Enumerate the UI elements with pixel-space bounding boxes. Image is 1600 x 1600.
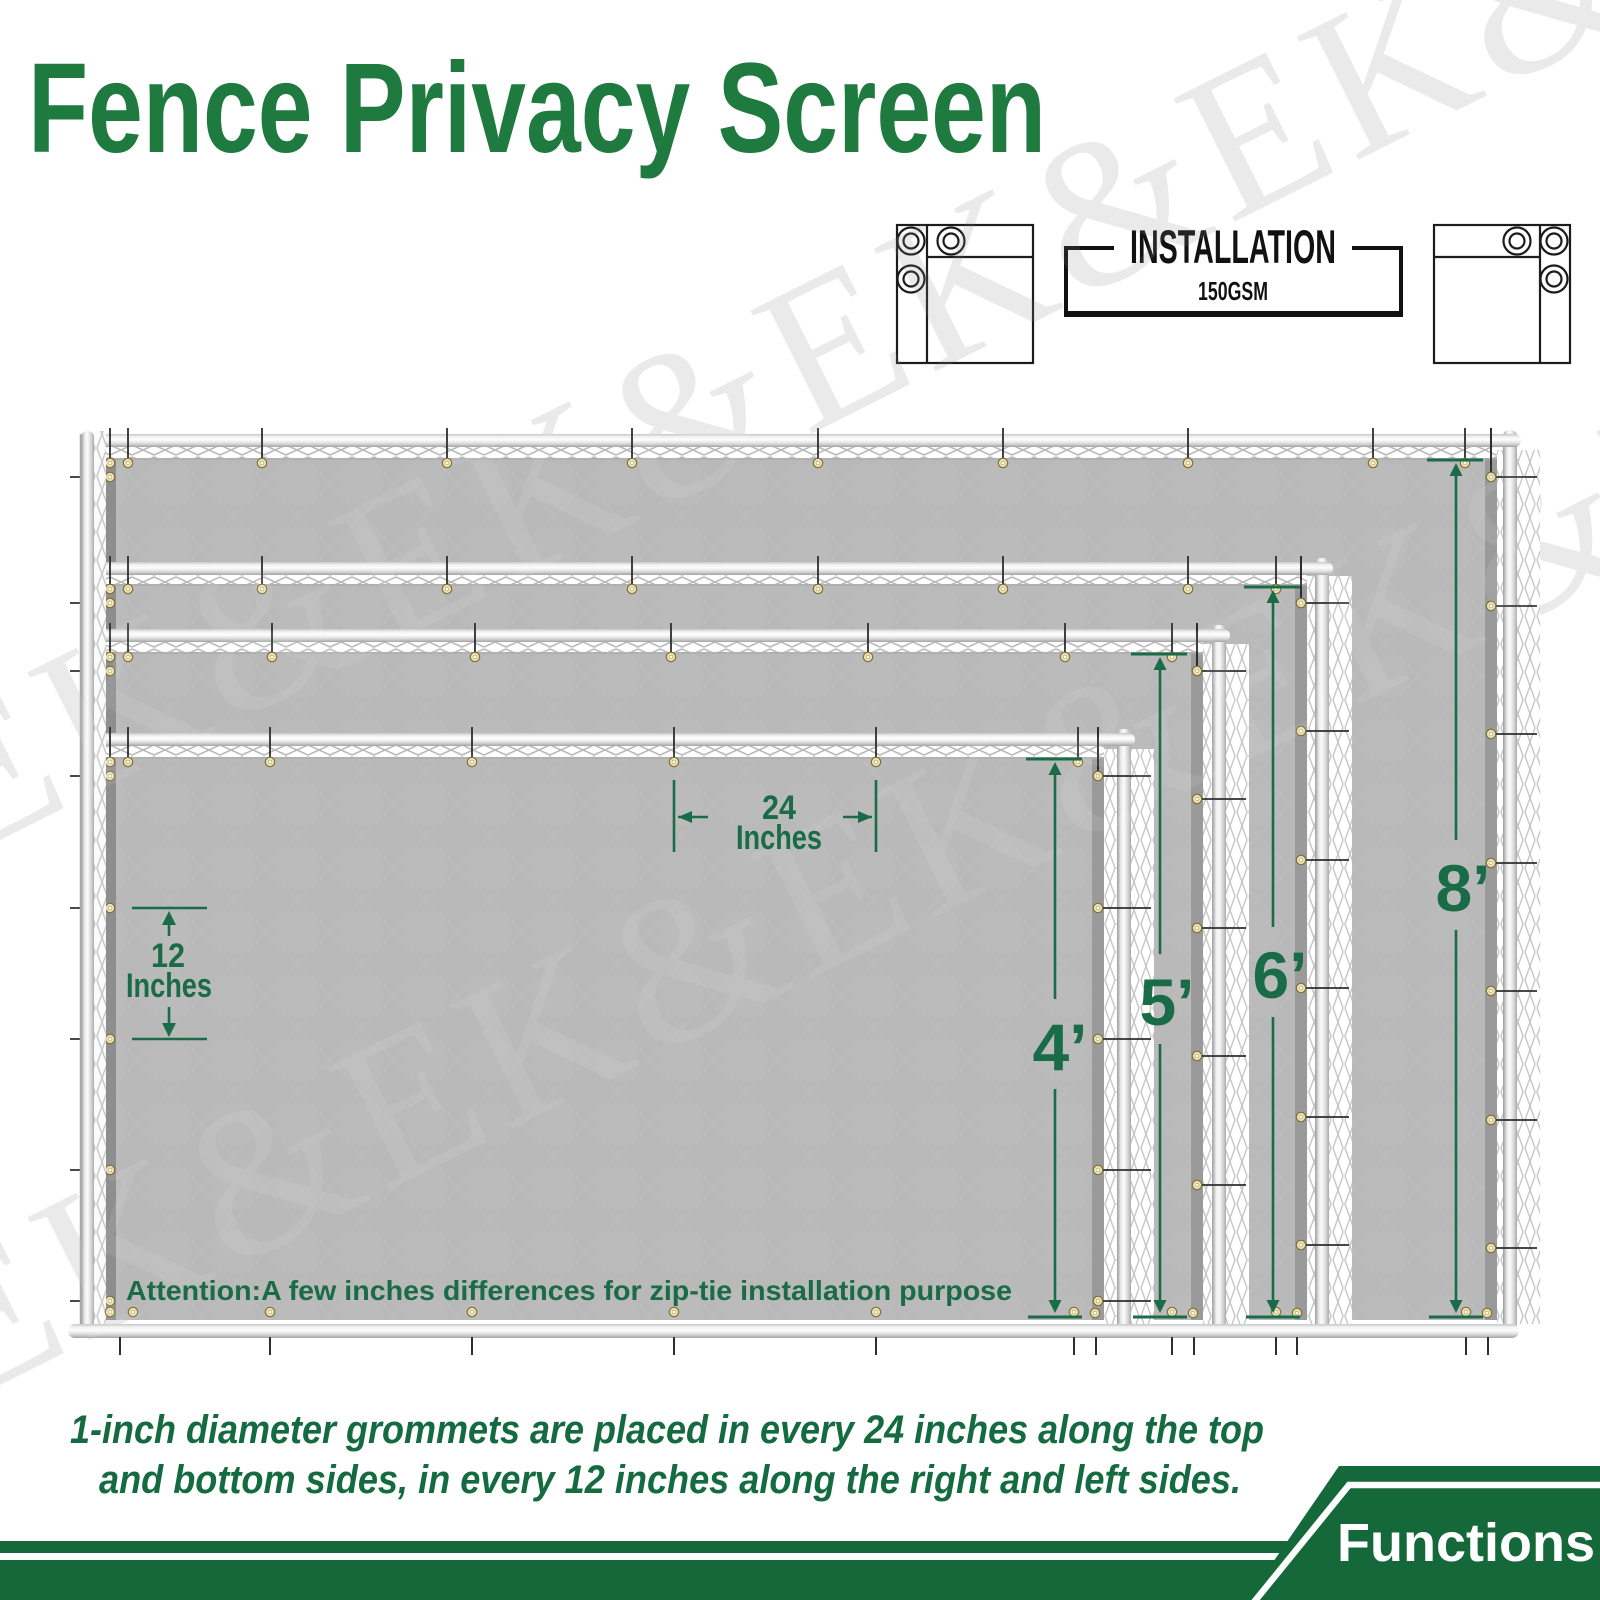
svg-text:Inches: Inches xyxy=(736,819,822,857)
svg-text:8’: 8’ xyxy=(1435,851,1490,925)
svg-text:5’: 5’ xyxy=(1139,965,1194,1039)
svg-text:Functions: Functions xyxy=(1337,1513,1595,1573)
svg-text:and bottom sides, in every 12: and bottom sides, in every 12 inches alo… xyxy=(99,1458,1241,1502)
svg-text:Attention:A few inches differe: Attention:A few inches differences for z… xyxy=(126,1275,1012,1306)
svg-text:Fence Privacy Screen: Fence Privacy Screen xyxy=(28,37,1046,180)
svg-text:1-inch diameter grommets are p: 1-inch diameter grommets are placed in e… xyxy=(70,1408,1264,1452)
svg-text:Inches: Inches xyxy=(126,967,212,1005)
svg-text:6’: 6’ xyxy=(1252,938,1307,1012)
svg-text:4’: 4’ xyxy=(1032,1010,1087,1084)
